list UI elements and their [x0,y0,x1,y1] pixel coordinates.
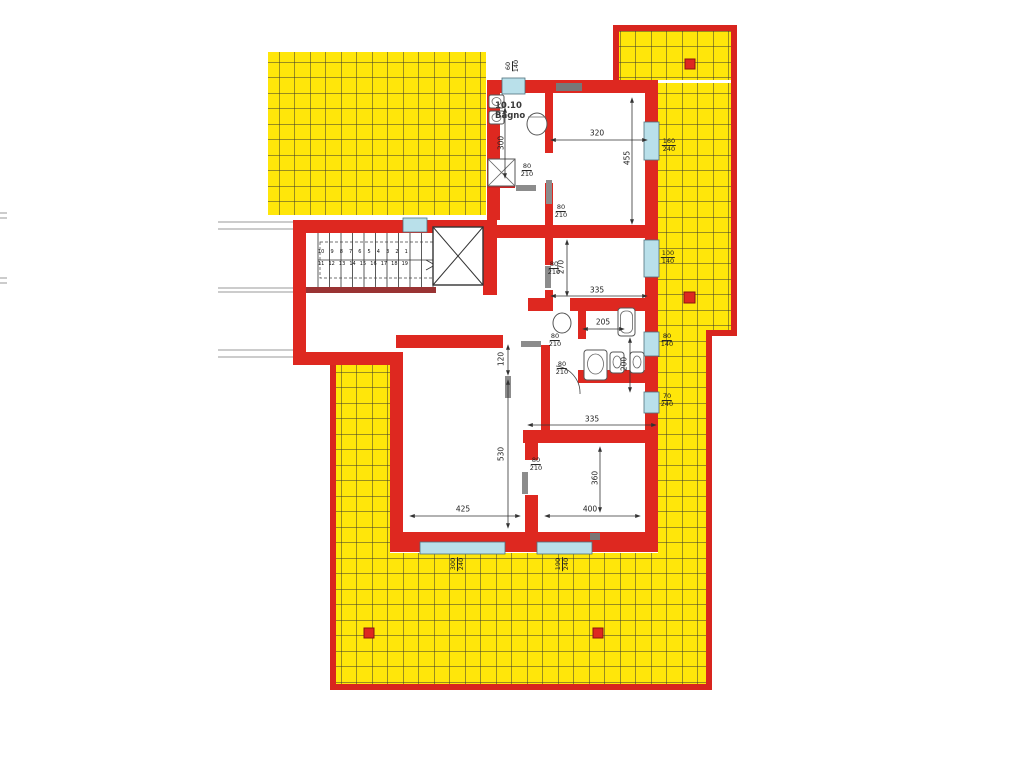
terrace-bottom [336,553,706,684]
terrace-top-left [268,52,486,215]
terrace-left-column [336,365,390,553]
bidet-fixture [630,352,644,373]
right-window-1 [644,122,659,160]
top-window [502,78,525,94]
stair-numbers-lower: 11 12 13 14 15 16 17 18 19 [318,261,408,267]
terrace-top-right [619,31,731,80]
room-label-bagno: 10.10 Bagno [495,101,525,121]
elevator-shaft [433,227,483,285]
bottom-window-2 [537,542,592,554]
dim-living-width: 425 [456,505,470,514]
door-label: 80210 [549,333,561,349]
right-window-4 [644,392,659,413]
drain-marker [364,628,374,638]
bottom-window-1 [420,542,505,554]
window-label-60-140: 60140 [505,60,521,72]
stair-numbers-upper: 10 9 8 7 6 5 4 3 2 1 [318,249,408,255]
door-leaf [521,341,541,347]
right-window-3 [644,332,659,356]
window-label-160-240: 160240 [662,138,676,154]
dim-bath-height: 200 [620,357,629,371]
reference-lines [0,213,293,357]
door-leaf [522,472,528,494]
door-label: 80210 [530,457,542,473]
window-label-300-240: 300240 [450,557,466,571]
radiator [590,533,600,540]
stair-treads [318,233,433,287]
dim-bed3-top-width: 335 [585,415,599,424]
dim-living-height: 530 [497,447,506,461]
dim-bed1-width: 320 [590,129,604,138]
door-leaf [546,180,552,204]
dim-bath-width: 205 [596,318,610,327]
dim-hall-opening: 120 [497,352,506,366]
dim-bed2-height: 270 [557,260,566,274]
door-label: 80210 [555,204,567,220]
terrace-right-lower [658,330,706,553]
sink-fixture [553,313,571,333]
drain-marker [684,292,695,303]
dim-bed3-height: 360 [591,471,600,485]
radiator [556,83,582,91]
stair-flight-edge [306,287,436,293]
window-label-80-140: 80140 [661,333,673,349]
floor-plan: 10.10 Bagno 60140 160240 100140 80140 70… [0,0,1024,768]
drain-marker [593,628,603,638]
room-name: Bagno [495,111,525,121]
window-label-190-240: 190240 [555,557,571,571]
stair-window [403,218,427,232]
drain-marker [685,59,695,69]
right-window-2 [644,240,659,277]
dim-bagno-height: 300 [497,136,506,150]
dim-bed2-width: 335 [590,286,604,295]
door-label: 80210 [521,163,533,179]
room-number: 10.10 [495,101,525,111]
sink-fixture [527,113,547,135]
door-leaf [516,185,536,191]
dim-bed1-height: 455 [623,151,632,165]
window-label-70-240: 70240 [661,393,673,409]
door-label: 80210 [556,361,568,377]
window-label-100-140: 100140 [661,250,675,266]
dim-bed3-width: 400 [583,505,597,514]
